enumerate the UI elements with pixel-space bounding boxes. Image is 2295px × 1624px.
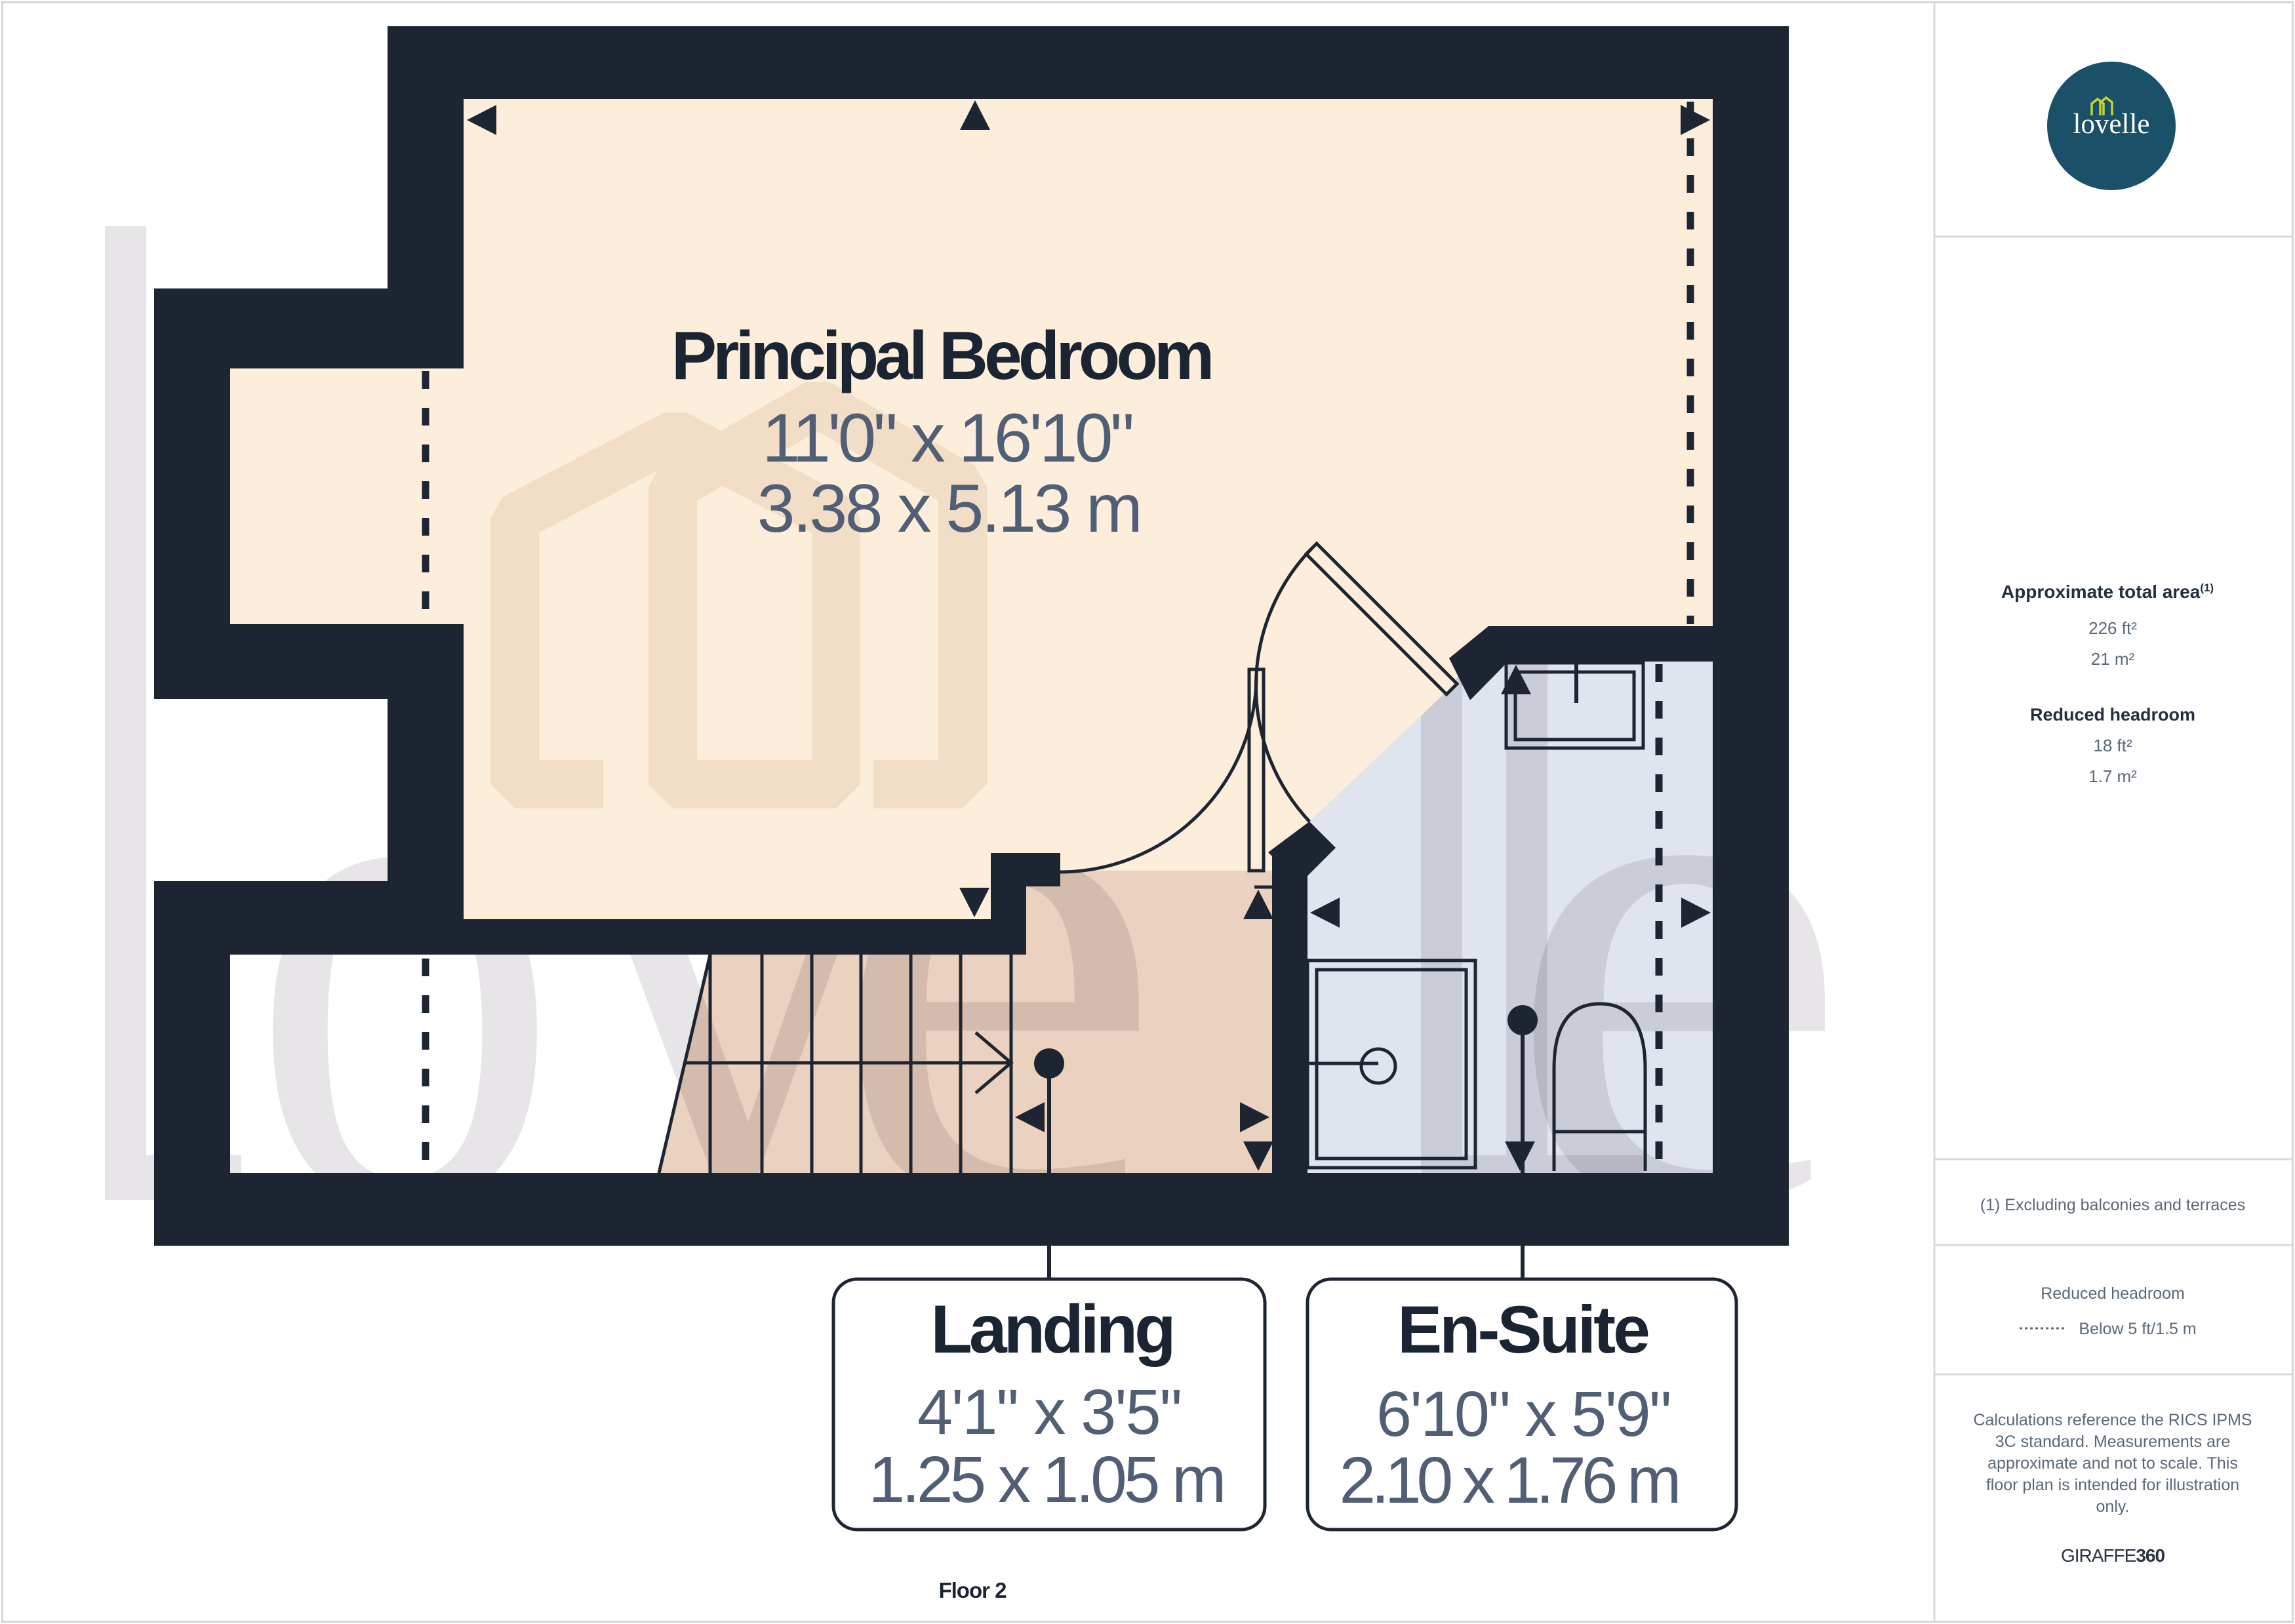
svg-text:lovelle: lovelle	[2073, 109, 2149, 140]
svg-text:Calculations reference the RIC: Calculations reference the RICS IPMS	[1973, 1411, 2252, 1429]
svg-text:En-Suite: En-Suite	[1397, 1292, 1648, 1367]
svg-text:floor plan is intended for ill: floor plan is intended for illustration	[1986, 1476, 2239, 1494]
svg-text:Reduced headroom: Reduced headroom	[2030, 705, 2195, 724]
svg-text:Approximate total area(1): Approximate total area(1)	[2001, 582, 2214, 602]
svg-text:11'0" x 16'10": 11'0" x 16'10"	[762, 400, 1132, 477]
svg-text:1.7 m²: 1.7 m²	[2088, 766, 2137, 786]
svg-text:only.: only.	[2096, 1497, 2130, 1516]
svg-text:4'1" x 3'5": 4'1" x 3'5"	[917, 1376, 1181, 1448]
svg-text:Floor 2: Floor 2	[938, 1578, 1007, 1602]
svg-text:2.10 x 1.76 m: 2.10 x 1.76 m	[1340, 1444, 1678, 1517]
svg-text:Principal Bedroom: Principal Bedroom	[671, 318, 1211, 394]
svg-text:(1) Excluding balconies and te: (1) Excluding balconies and terraces	[1980, 1196, 2245, 1214]
svg-text:18 ft²: 18 ft²	[2093, 736, 2132, 755]
svg-text:3C standard. Measurements are: 3C standard. Measurements are	[1995, 1433, 2231, 1451]
svg-text:Reduced headroom: Reduced headroom	[2041, 1284, 2185, 1303]
svg-text:226 ft²: 226 ft²	[2088, 618, 2137, 638]
svg-text:approximate and not to scale.: approximate and not to scale. This	[1987, 1454, 2238, 1473]
svg-text:GIRAFFE360: GIRAFFE360	[2061, 1545, 2165, 1566]
svg-text:1.25 x 1.05 m: 1.25 x 1.05 m	[869, 1443, 1224, 1516]
svg-text:Below 5 ft/1.5 m: Below 5 ft/1.5 m	[2079, 1320, 2196, 1338]
svg-text:6'10" x 5'9": 6'10" x 5'9"	[1376, 1378, 1670, 1450]
svg-text:Landing: Landing	[930, 1292, 1172, 1368]
svg-text:3.38 x 5.13 m: 3.38 x 5.13 m	[757, 471, 1141, 547]
svg-text:21 m²: 21 m²	[2091, 649, 2135, 669]
